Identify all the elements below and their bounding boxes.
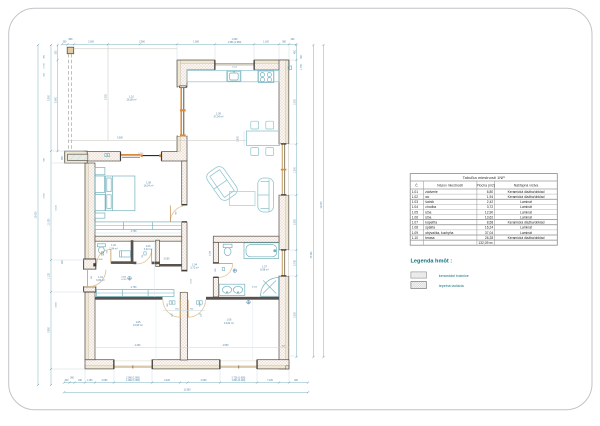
svg-text:8,58 m²: 8,58 m² [260,269,269,272]
svg-text:12,90: 12,90 [485,210,493,214]
svg-text:16,24: 16,24 [485,226,493,230]
svg-text:2,42 m²: 2,42 m² [144,248,153,251]
svg-text:Č.: Č. [415,183,418,188]
svg-text:6,80 m²: 6,80 m² [96,279,105,282]
svg-text:2.000: 2.000 [164,259,170,261]
svg-text:5.500: 5.500 [49,94,51,100]
svg-text:šatník: šatník [425,200,434,204]
svg-text:1.540: 1.540 [55,205,57,211]
svg-text:1.150: 1.150 [87,380,93,382]
svg-text:26,28: 26,28 [485,236,493,240]
svg-text:tepelná izolácia: tepelná izolácia [439,284,464,288]
svg-text:2.060: 2.060 [201,380,207,382]
svg-text:Keramická dlažba/obklad: Keramická dlažba/obklad [508,221,545,225]
svg-text:wc: wc [425,195,429,199]
svg-text:Laminát: Laminát [520,215,532,219]
svg-text:12,90 m²: 12,90 m² [133,324,143,327]
svg-text:1.08: 1.08 [412,226,419,230]
svg-text:Názov miestnosti: Názov miestnosti [437,184,463,188]
svg-text:15.340: 15.340 [311,251,313,259]
svg-text:1.380: 1.380 [193,42,199,44]
svg-text:1.500: 1.500 [294,166,296,172]
svg-text:4.750: 4.750 [131,231,137,233]
svg-text:chodba: chodba [425,205,436,209]
svg-text:4.500: 4.500 [252,286,258,288]
svg-text:1.09: 1.09 [412,231,419,235]
svg-text:Laminát: Laminát [520,226,532,230]
svg-text:1.07: 1.07 [412,221,419,225]
svg-text:1.750: 1.750 [44,63,46,69]
svg-text:1.500: 1.500 [210,250,212,256]
svg-text:2.726: 2.726 [294,259,296,265]
svg-text:zádverie: zádverie [425,190,438,194]
svg-text:Laminát: Laminát [520,205,532,209]
svg-text:1.125: 1.125 [49,272,51,278]
svg-text:19.600: 19.600 [321,201,323,209]
svg-text:izba: izba [425,215,431,219]
svg-text:1.750: 1.750 [301,63,303,69]
svg-text:Tabuľka miestností 1NP: Tabuľka miestností 1NP [463,175,506,180]
svg-text:3.220: 3.220 [164,380,170,382]
svg-text:1.06: 1.06 [412,215,419,219]
svg-text:2.000: 2.000 [232,66,238,68]
svg-text:2.960 (1.950): 2.960 (1.950) [126,377,140,379]
svg-text:1.04: 1.04 [412,205,419,209]
svg-text:1.100: 1.100 [263,42,269,44]
svg-text:19.600: 19.600 [36,211,38,219]
svg-text:4.750: 4.750 [131,287,137,289]
svg-text:1.950 (1.950): 1.950 (1.950) [228,42,242,44]
svg-text:3,72: 3,72 [487,205,494,209]
svg-text:2.250: 2.250 [294,218,296,224]
svg-text:2.250: 2.250 [44,193,46,199]
svg-text:4.550: 4.550 [223,345,229,347]
svg-text:4.300: 4.300 [135,345,141,347]
svg-text:1,94: 1,94 [487,195,494,199]
svg-text:Laminát: Laminát [520,200,532,204]
svg-text:kúpeľňa: kúpeľňa [425,221,437,225]
svg-text:Legenda hmôt :: Legenda hmôt : [411,258,453,264]
svg-text:3.850: 3.850 [49,326,51,332]
svg-text:1.05: 1.05 [412,210,419,214]
svg-text:spálňa: spálňa [425,226,435,230]
svg-text:6,80: 6,80 [487,190,494,194]
svg-text:obývačka, kuchyňa: obývačka, kuchyňa [425,231,453,235]
svg-text:1.10: 1.10 [412,236,419,240]
svg-text:2.060: 2.060 [102,380,108,382]
svg-text:3,72 m²: 3,72 m² [190,267,199,270]
svg-text:11.050: 11.050 [49,218,51,226]
svg-text:37,04 m²: 37,04 m² [214,116,224,119]
svg-text:2,42: 2,42 [487,200,494,204]
svg-text:Nášľapná vrstva: Nášľapná vrstva [514,184,539,188]
svg-text:Keramická dlažba/obklad: Keramická dlažba/obklad [508,190,545,194]
svg-text:3.750: 3.750 [138,153,144,155]
svg-text:1.800: 1.800 [97,259,103,261]
svg-text:Laminát: Laminát [520,231,532,235]
svg-text:1.800: 1.800 [238,135,240,141]
svg-text:3.300: 3.300 [294,311,296,317]
svg-text:37,04: 37,04 [485,231,493,235]
svg-text:2.900: 2.900 [139,42,145,44]
svg-text:16,24 m²: 16,24 m² [144,185,154,188]
svg-text:1.01: 1.01 [412,190,419,194]
svg-text:1.03: 1.03 [412,200,419,204]
svg-text:2.300: 2.300 [88,42,94,44]
svg-text:2.300: 2.300 [106,93,108,99]
svg-text:5.500: 5.500 [117,138,123,140]
svg-text:26,28 m²: 26,28 m² [127,99,137,102]
svg-text:3.690: 3.690 [55,302,57,308]
svg-text:13,62 m²: 13,62 m² [224,322,234,325]
svg-text:terasa: terasa [425,236,434,240]
svg-text:izba: izba [425,210,431,214]
svg-text:1.02: 1.02 [412,195,419,199]
svg-text:keramické tvárnice: keramické tvárnice [439,274,469,278]
svg-text:Keramická dlažba/obklad: Keramická dlažba/obklad [508,236,545,240]
svg-text:1,94 m²: 1,94 m² [109,247,118,250]
svg-text:8,58: 8,58 [487,221,494,225]
svg-text:Laminát: Laminát [520,210,532,214]
svg-text:1.000: 1.000 [191,278,193,284]
svg-text:7.220: 7.220 [267,380,273,382]
svg-text:5.060: 5.060 [55,96,57,102]
svg-text:-0,020: -0,020 [121,279,126,281]
svg-text:Keramická dlažba/obklad: Keramická dlažba/obklad [508,195,545,199]
svg-text:1.800 (2.400): 1.800 (2.400) [232,380,246,382]
svg-text:2.726 (1.800): 2.726 (1.800) [232,377,246,379]
svg-text:13,62: 13,62 [485,215,493,219]
svg-text:132,09 m²: 132,09 m² [478,241,494,245]
svg-text:Plocha (m2): Plocha (m2) [477,184,495,188]
svg-text:3.300: 3.300 [294,98,296,104]
svg-text:1.900 (1.950): 1.900 (1.950) [126,380,140,382]
svg-text:11.950: 11.950 [184,390,192,392]
